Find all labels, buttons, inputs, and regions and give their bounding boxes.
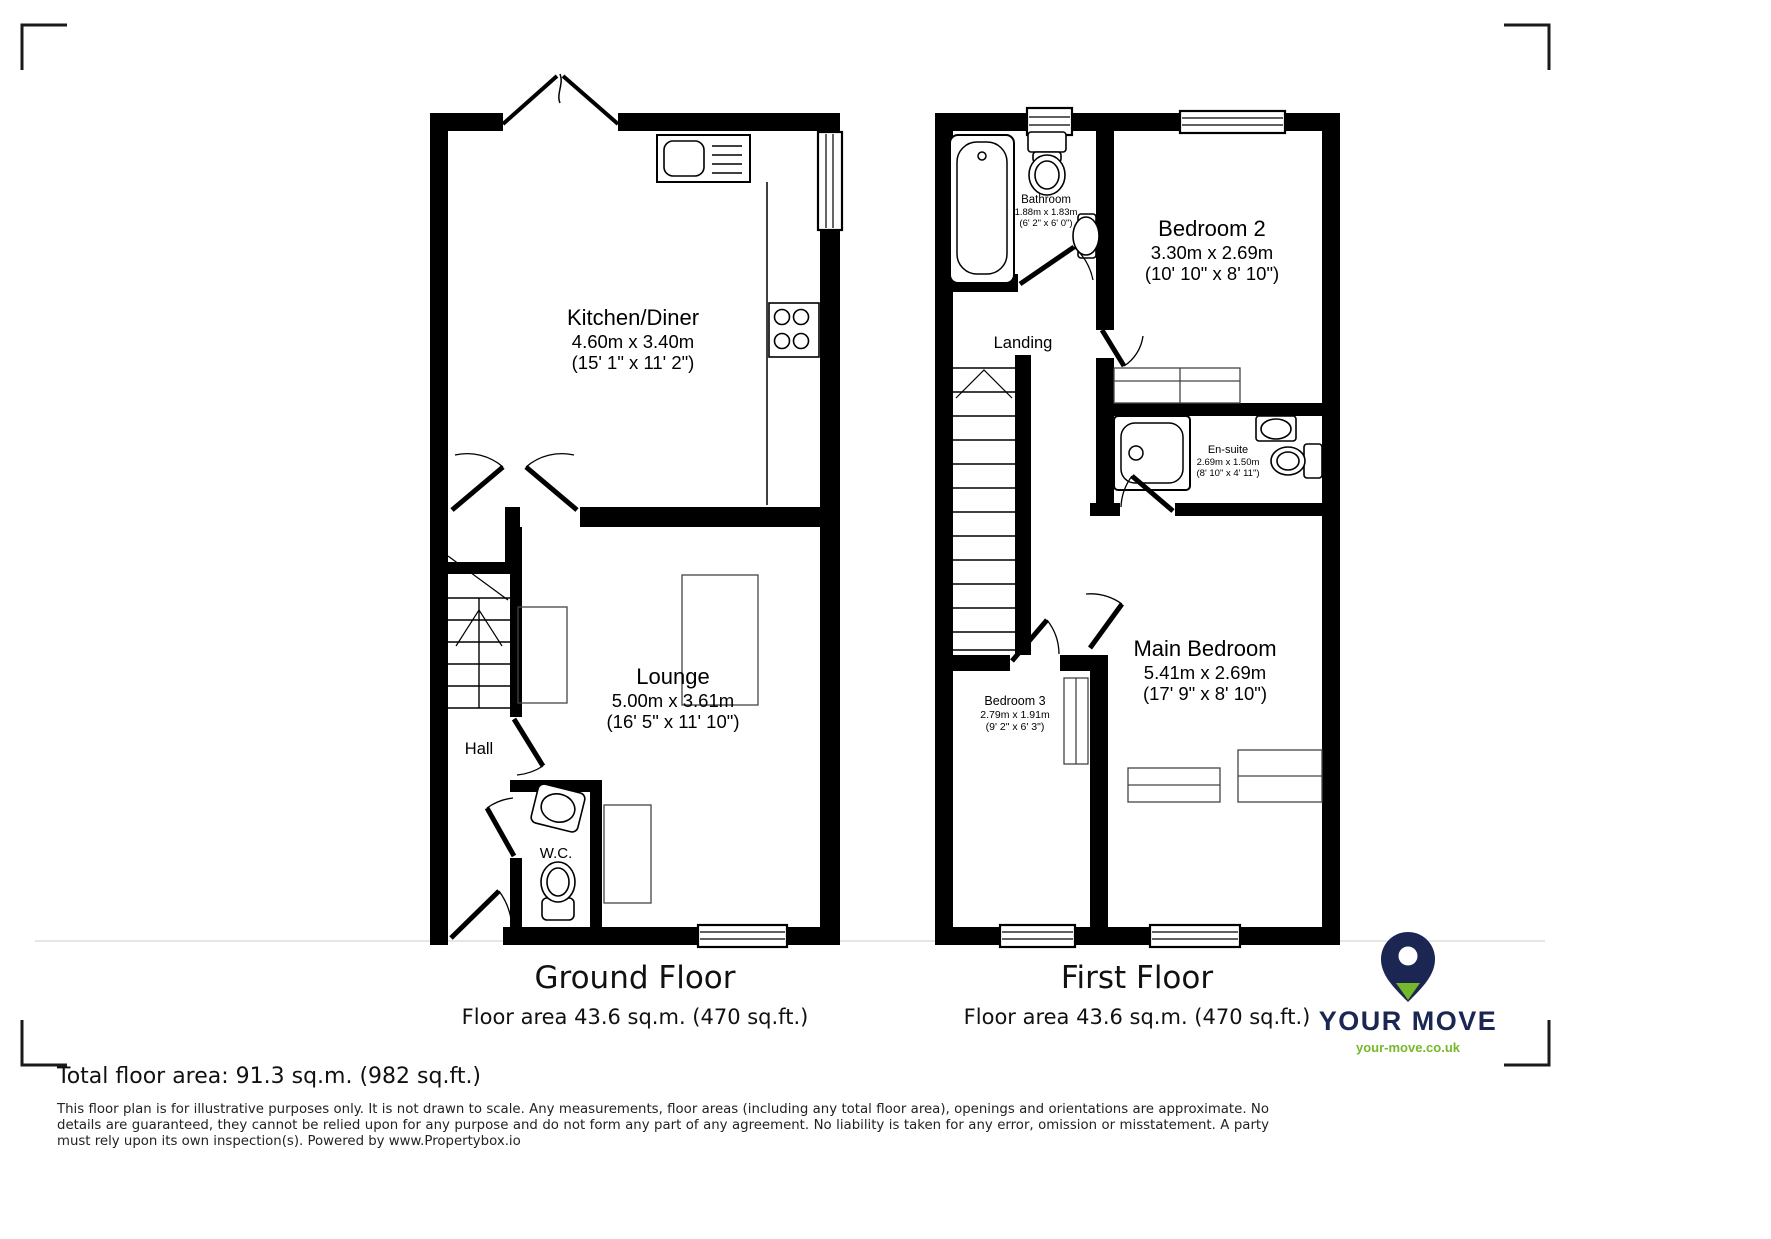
your-move-url: your-move.co.uk: [1318, 1040, 1498, 1055]
kitchen-label: Kitchen/Diner 4.60m x 3.40m (15' 1" x 11…: [567, 305, 699, 373]
room-imperial: (9' 2" x 6' 3"): [980, 721, 1049, 733]
room-name: W.C.: [540, 845, 573, 862]
room-imperial: (6' 2" x 6' 0"): [1015, 218, 1078, 229]
main-bedroom-door: [1086, 594, 1122, 648]
room-imperial: (15' 1" x 11' 2"): [567, 352, 699, 373]
main-bedroom-window: [1150, 925, 1240, 947]
hall-label: Hall: [465, 740, 493, 759]
bathroom-toilet: [1028, 132, 1066, 195]
room-name: Main Bedroom: [1133, 636, 1276, 662]
bedroom3-window: [1000, 925, 1075, 947]
bedroom3-label: Bedroom 3 2.79m x 1.91m (9' 2" x 6' 3"): [980, 694, 1049, 733]
total-floor-area: Total floor area: 91.3 sq.m. (982 sq.ft.…: [57, 1064, 481, 1089]
ensuite-basin: [1256, 416, 1296, 441]
ensuite-shower: [1114, 416, 1190, 490]
hall-lounge-door: [514, 719, 543, 775]
room-name: Landing: [994, 334, 1053, 353]
main-bedroom-label: Main Bedroom 5.41m x 2.69m (17' 9" x 8' …: [1133, 636, 1276, 704]
ground-floor-plan: [430, 74, 842, 947]
lounge-window: [698, 925, 787, 947]
front-door: [451, 891, 512, 938]
room-metric: 4.60m x 3.40m: [567, 331, 699, 352]
wc-door: [487, 798, 514, 856]
first-floor-title: First Floor: [1061, 960, 1213, 996]
hob: [769, 303, 819, 357]
ground-floor-title: Ground Floor: [534, 960, 735, 996]
main-bedroom-wardrobes: [1128, 750, 1322, 802]
bathtub: [950, 135, 1014, 283]
crop-marks: [22, 25, 1549, 1065]
bathroom-window: [1027, 108, 1072, 135]
disclaimer-text: This floor plan is for illustrative purp…: [57, 1102, 1269, 1151]
room-metric: 5.00m x 3.61m: [607, 690, 740, 711]
bathroom-label: Bathroom 1.88m x 1.83m (6' 2" x 6' 0"): [1015, 194, 1078, 229]
floorplan-drawing: [0, 0, 1771, 1239]
room-imperial: (10' 10" x 8' 10"): [1145, 263, 1279, 284]
bedroom2-window: [1180, 111, 1285, 133]
room-metric: 1.88m x 1.83m: [1015, 207, 1078, 218]
your-move-wordmark: YOUR MOVE: [1318, 1006, 1498, 1037]
first-floor-plan: [935, 108, 1340, 947]
your-move-logo: YOUR MOVE your-move.co.uk: [1318, 930, 1498, 1055]
room-name: Bathroom: [1015, 194, 1078, 207]
room-name: Bedroom 3: [980, 694, 1049, 709]
room-metric: 5.41m x 2.69m: [1133, 662, 1276, 683]
french-doors: [503, 74, 618, 124]
room-metric: 2.69m x 1.50m: [1196, 457, 1259, 468]
bedroom3-closet: [1064, 678, 1088, 764]
lounge-label: Lounge 5.00m x 3.61m (16' 5" x 11' 10"): [607, 664, 740, 732]
ground-floor-area: Floor area 43.6 sq.m. (470 sq.ft.): [462, 1005, 809, 1029]
landing-label: Landing: [994, 334, 1053, 353]
room-name: Hall: [465, 740, 493, 759]
room-imperial: (17' 9" x 8' 10"): [1133, 683, 1276, 704]
room-metric: 2.79m x 1.91m: [980, 709, 1049, 721]
wc-label: W.C.: [540, 845, 573, 862]
room-name: Lounge: [607, 664, 740, 690]
room-name: Kitchen/Diner: [567, 305, 699, 331]
bedroom2-label: Bedroom 2 3.30m x 2.69m (10' 10" x 8' 10…: [1145, 216, 1279, 284]
room-imperial: (16' 5" x 11' 10"): [607, 711, 740, 732]
kitchen-window: [818, 132, 842, 230]
room-imperial: (8' 10" x 4' 11"): [1196, 468, 1259, 479]
ground-stairs: [448, 556, 510, 708]
first-stairs: [953, 368, 1015, 650]
room-name: Bedroom 2: [1145, 216, 1279, 242]
ensuite-label: En-suite 2.69m x 1.50m (8' 10" x 4' 11"): [1196, 444, 1259, 479]
ensuite-toilet: [1271, 444, 1322, 478]
bedroom2-closet: [1114, 368, 1240, 403]
wc-toilet: [541, 862, 575, 920]
room-metric: 3.30m x 2.69m: [1145, 242, 1279, 263]
lounge-furniture: [604, 805, 651, 903]
kitchen-doors: [452, 454, 577, 510]
kitchen-sink: [657, 135, 750, 182]
room-name: En-suite: [1196, 444, 1259, 457]
floorplan-page: Kitchen/Diner 4.60m x 3.40m (15' 1" x 11…: [0, 0, 1771, 1239]
first-floor-area: Floor area 43.6 sq.m. (470 sq.ft.): [964, 1005, 1311, 1029]
understair-cupboard: [518, 607, 567, 703]
